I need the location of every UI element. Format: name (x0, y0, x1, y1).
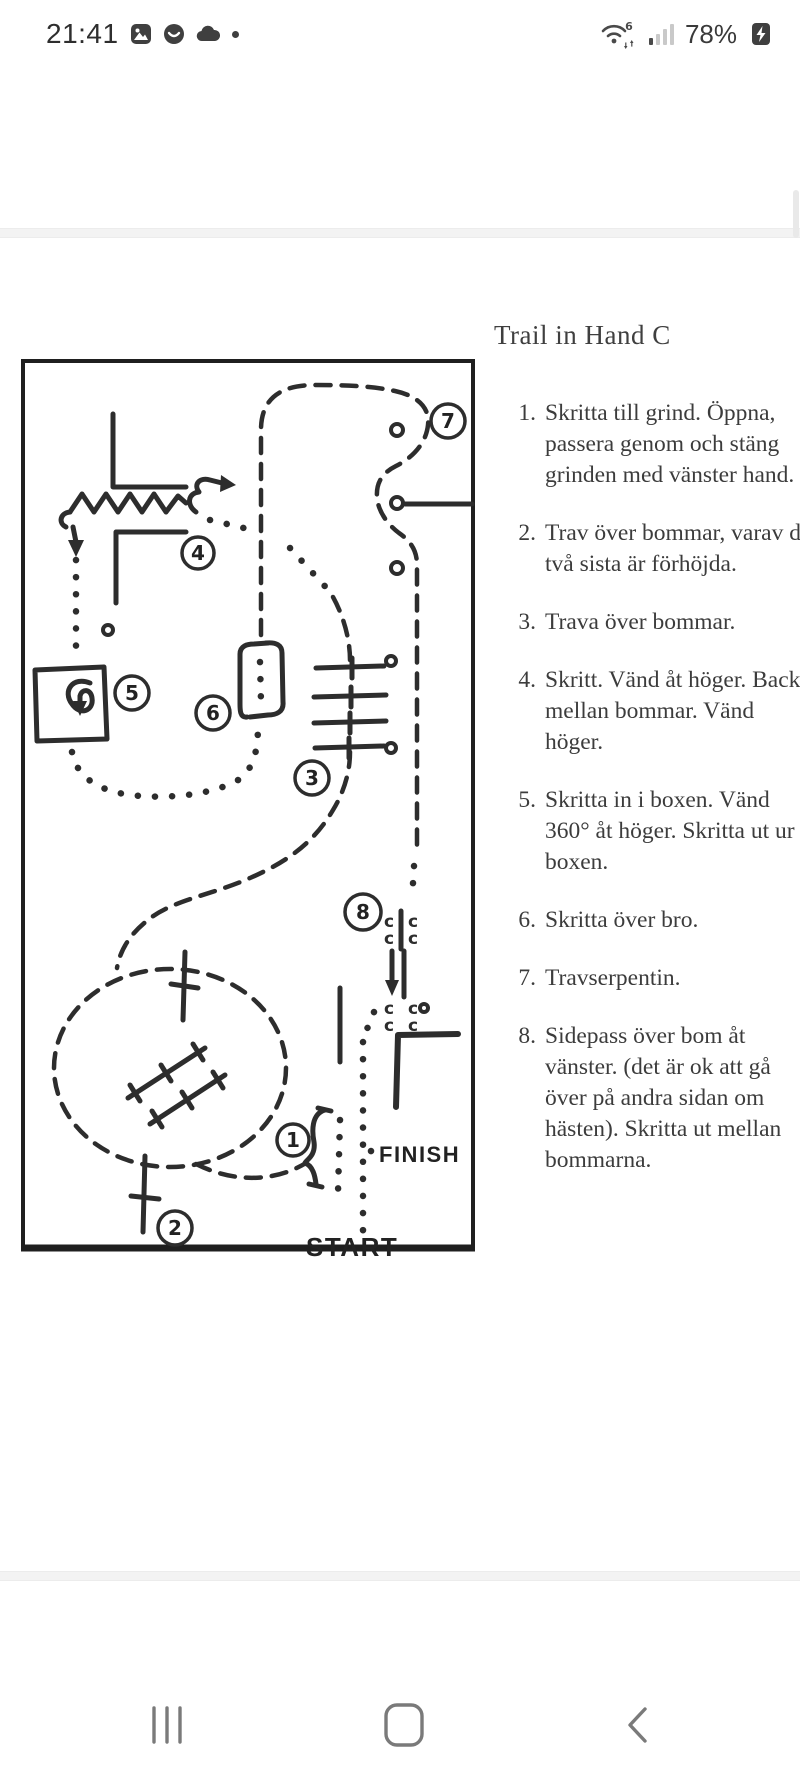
marker-4: 4 (182, 537, 214, 569)
item-number: 8. (506, 1021, 536, 1176)
svg-text:3: 3 (305, 766, 319, 790)
start-label: START (306, 1232, 398, 1262)
item-text: Skritta in i boxen. Vänd 360° åt höger. … (545, 785, 800, 878)
instruction-item-6: 6.Skritta över bro. (506, 905, 800, 936)
marker-2: 2 (158, 1211, 192, 1245)
home-icon (383, 1702, 425, 1751)
item-number: 4. (506, 665, 536, 758)
svg-text:c: c (408, 929, 418, 949)
marker-3: 3 (295, 761, 329, 795)
back-button[interactable] (624, 1705, 650, 1748)
svg-text:4: 4 (191, 541, 205, 565)
cone (103, 625, 113, 635)
gallery-icon (130, 23, 152, 45)
page-separator-bottom (0, 1571, 800, 1581)
course-diagram: c c c c c c c c (20, 358, 478, 1250)
finish-label: FINISH (379, 1142, 460, 1167)
arrow-down (68, 540, 84, 557)
item-number: 5. (506, 785, 536, 878)
item-number: 3. (506, 607, 536, 638)
marker-6: 6 (196, 696, 230, 730)
contacts-app-icon (163, 23, 185, 45)
item-text: Skritta till grind. Öppna, passera genom… (545, 398, 800, 491)
recents-button[interactable] (150, 1705, 184, 1748)
item-text: Skritt. Vänd åt höger. Backa mellan bomm… (545, 665, 800, 758)
recents-icon (150, 1705, 184, 1748)
home-button[interactable] (383, 1702, 425, 1751)
obstacle-turn-box (35, 667, 107, 741)
marker-7: 7 (431, 404, 465, 438)
instruction-list: 1.Skritta till grind. Öppna, passera gen… (506, 398, 800, 1203)
svg-text:c: c (384, 929, 394, 949)
item-text: Skritta över bro. (545, 905, 800, 936)
wifi6-icon: 6 (599, 19, 637, 49)
item-number: 2. (506, 518, 536, 580)
status-bar: 21:41 6 (0, 0, 800, 64)
instruction-item-5: 5.Skritta in i boxen. Vänd 360° åt höger… (506, 785, 800, 878)
marker-5: 5 (115, 676, 149, 710)
cone (391, 497, 403, 509)
arrow-right (220, 475, 236, 492)
svg-text:c: c (408, 1016, 418, 1036)
item-text: Travserpentin. (545, 963, 800, 994)
navigation-bar (0, 1676, 800, 1776)
instruction-item-2: 2.Trav över bommar, varav de två sista ä… (506, 518, 800, 580)
signal-strength-icon (648, 22, 674, 46)
instruction-item-1: 1.Skritta till grind. Öppna, passera gen… (506, 398, 800, 491)
item-number: 6. (506, 905, 536, 936)
item-number: 7. (506, 963, 536, 994)
svg-text:7: 7 (441, 409, 455, 433)
obstacle-back-through (61, 414, 236, 603)
cloud-icon (196, 25, 220, 43)
marker-8: 8 (345, 894, 381, 930)
marker-1: 1 (277, 1124, 309, 1156)
status-time: 21:41 (46, 18, 119, 50)
cone (391, 562, 403, 574)
cone (391, 424, 403, 436)
svg-text:5: 5 (125, 681, 139, 705)
obstacle-cavaletti (128, 952, 225, 1232)
arrow-down (385, 980, 399, 996)
item-text: Sidepass över bom åt vänster. (det är ok… (545, 1021, 800, 1176)
instruction-item-8: 8.Sidepass över bom åt vänster. (det är … (506, 1021, 800, 1176)
svg-text:2: 2 (168, 1216, 182, 1240)
obstacle-trot-poles (314, 656, 396, 758)
page-title: Trail in Hand C (494, 320, 671, 351)
status-bar-right: 6 78% (599, 19, 774, 50)
item-number: 1. (506, 398, 536, 491)
status-bar-left: 21:41 (46, 18, 240, 50)
svg-text:1: 1 (286, 1128, 300, 1152)
instruction-item-7: 7.Travserpentin. (506, 963, 800, 994)
battery-charging-icon (748, 21, 774, 47)
arena-border (21, 361, 475, 1248)
battery-percent: 78% (685, 19, 737, 50)
wifi6-label: 6 (625, 20, 633, 33)
svg-text:6: 6 (206, 701, 220, 725)
notification-dot (231, 30, 240, 39)
svg-text:8: 8 (356, 900, 370, 924)
instruction-item-4: 4.Skritt. Vänd åt höger. Backa mellan bo… (506, 665, 800, 758)
scrollbar-thumb[interactable] (793, 190, 799, 238)
item-text: Trava över bommar. (545, 607, 800, 638)
walk-path-dots (72, 520, 414, 1242)
item-text: Trav över bommar, varav de två sista är … (545, 518, 800, 580)
instruction-item-3: 3.Trava över bommar. (506, 607, 800, 638)
page-separator-top (0, 228, 800, 238)
back-icon (624, 1705, 650, 1748)
svg-text:c: c (384, 1016, 394, 1036)
obstacle-sidepass: c c c c c c c c (340, 911, 458, 1107)
